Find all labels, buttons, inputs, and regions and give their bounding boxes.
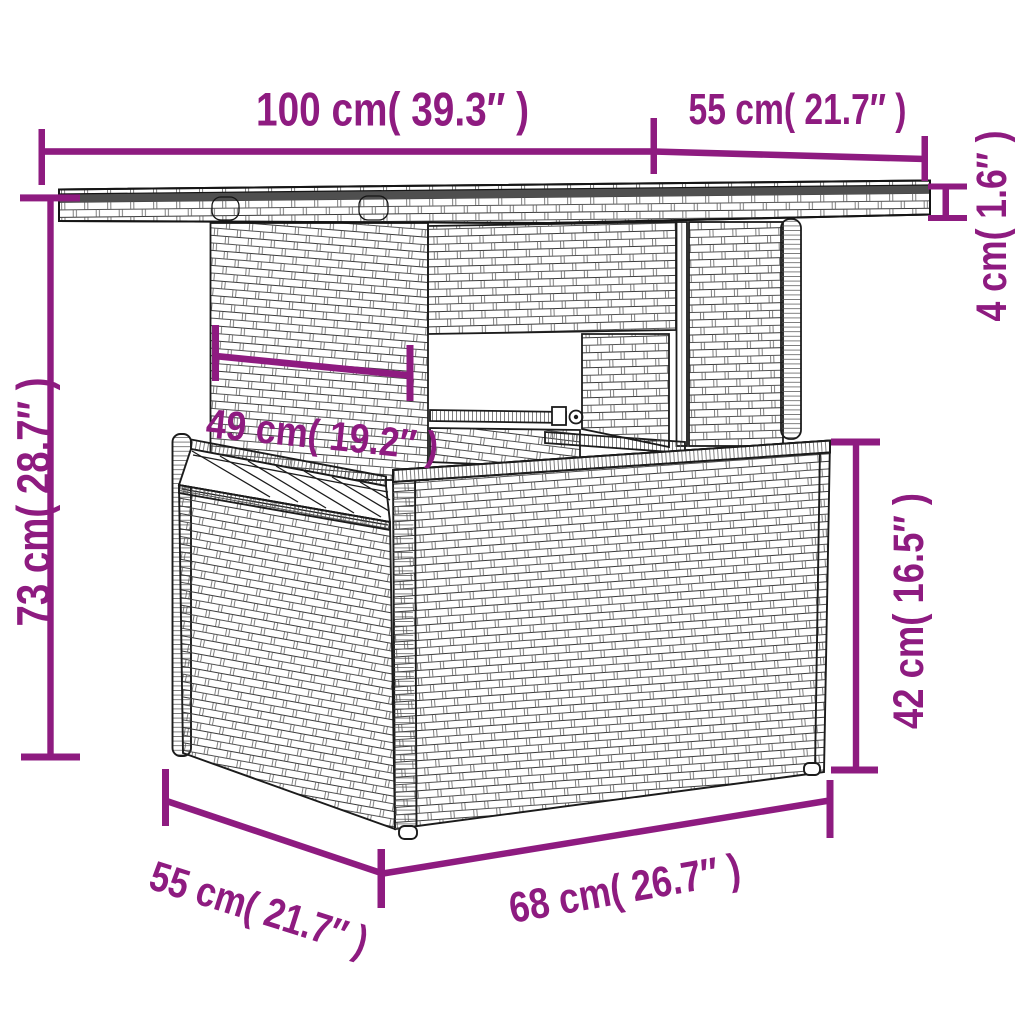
svg-text:73 cm( 28.7″ ): 73 cm( 28.7″ ) xyxy=(7,378,60,627)
svg-text:42 cm( 16.5″ ): 42 cm( 16.5″ ) xyxy=(885,493,933,729)
svg-text:55 cm( 21.7″ ): 55 cm( 21.7″ ) xyxy=(689,85,907,134)
svg-text:4 cm( 1.6″ ): 4 cm( 1.6″ ) xyxy=(968,131,1016,322)
svg-text:100 cm( 39.3″ ): 100 cm( 39.3″ ) xyxy=(256,83,529,136)
